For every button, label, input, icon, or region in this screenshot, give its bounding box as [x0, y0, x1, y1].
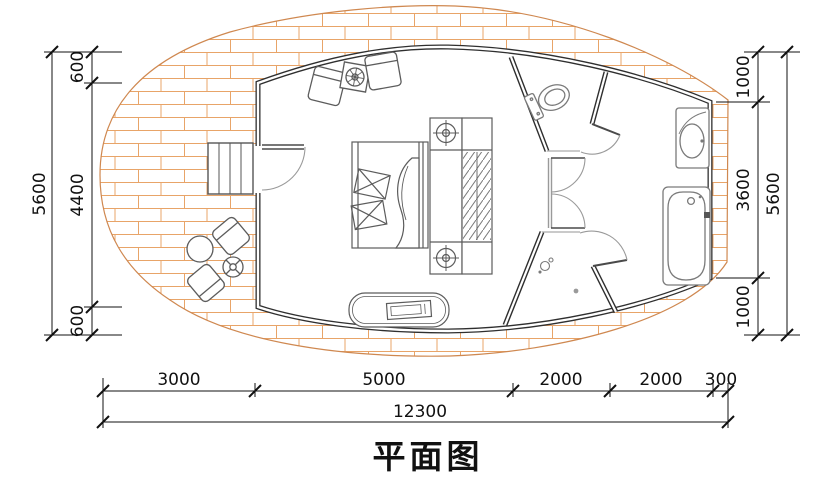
- dim-left-seg-top: 600: [68, 51, 88, 83]
- nightstand-wardrobe-column: [430, 118, 492, 274]
- dim-left-seg-mid: 4400: [68, 173, 88, 216]
- dim-left-seg-bottom: 600: [68, 305, 88, 337]
- bathtub-icon: [663, 187, 710, 285]
- dimension-right: 1000 3600 1000 5600: [716, 46, 800, 341]
- dim-bottom-seg-2: 2000: [539, 370, 582, 390]
- floor-drain-icon: [574, 289, 579, 294]
- dim-bottom-total: 12300: [393, 402, 447, 422]
- tv-icon: [386, 300, 431, 319]
- bed-group: [351, 142, 428, 248]
- plant-icon: [223, 257, 243, 277]
- dim-right-total: 5600: [764, 172, 784, 215]
- dim-bottom-seg-4: 300: [705, 370, 737, 390]
- floor-plan-page: 5600 600 4400 600 1000 3600 1000 5600 30…: [0, 0, 837, 496]
- dimension-bottom: 3000 5000 2000 2000 300 12300: [97, 370, 737, 428]
- dim-bottom-seg-3: 2000: [639, 370, 682, 390]
- armchair-icon: [364, 51, 401, 90]
- dim-right-seg-top: 1000: [734, 55, 754, 98]
- dim-left-total: 5600: [30, 172, 50, 215]
- dim-bottom-seg-1: 5000: [362, 370, 405, 390]
- dim-bottom-seg-0: 3000: [157, 370, 200, 390]
- dim-right-seg-mid: 3600: [734, 168, 754, 211]
- entry-stairs-icon: [208, 143, 253, 194]
- plan-title: 平面图: [373, 437, 484, 476]
- sink-icon: [676, 108, 709, 168]
- deck-table-icon: [187, 236, 213, 262]
- tv-console: [349, 293, 449, 327]
- dim-right-seg-bottom: 1000: [734, 285, 754, 328]
- floor-plan-canvas: 5600 600 4400 600 1000 3600 1000 5600 30…: [0, 0, 837, 496]
